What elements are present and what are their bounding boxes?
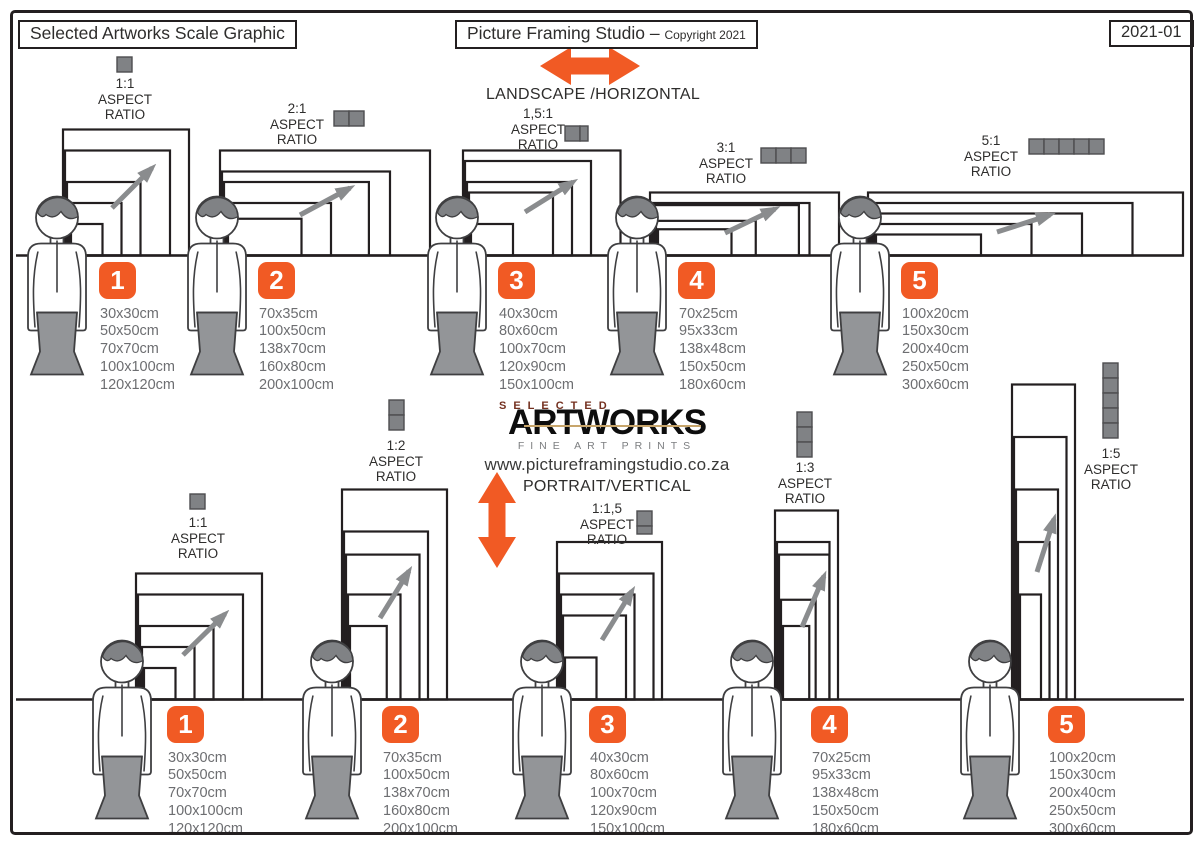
landscape-ratio-label-2: 2:1ASPECTRATIO [270, 101, 324, 148]
size-item: 200x100cm [259, 377, 334, 395]
portrait-ratio-icon-4 [797, 412, 812, 457]
size-item: 70x35cm [383, 750, 458, 768]
size-item: 95x33cm [812, 767, 879, 785]
scale-arrow-icon [1037, 519, 1054, 572]
ratio-word: RATIO [964, 164, 1018, 180]
landscape-arrow-icon [540, 47, 640, 85]
size-item: 150x100cm [499, 377, 574, 395]
aspect-word: ASPECT [369, 454, 423, 470]
landscape-heading: LANDSCAPE /HORIZONTAL [486, 86, 700, 104]
scale-arrow-icon [300, 188, 350, 215]
human-figure [723, 641, 781, 819]
portrait-badge-4: 4 [811, 706, 848, 743]
size-item: 120x90cm [590, 803, 665, 821]
size-item: 100x50cm [259, 323, 334, 341]
landscape-ratio-label-1: 1:1ASPECTRATIO [98, 76, 152, 123]
size-item: 50x50cm [168, 767, 243, 785]
size-item: 40x30cm [499, 306, 574, 324]
size-item: 70x25cm [812, 750, 879, 768]
ratio-value: 1:3 [778, 460, 832, 476]
size-item: 40x30cm [590, 750, 665, 768]
frame-rect [876, 235, 981, 256]
size-item: 95x33cm [679, 323, 746, 341]
size-item: 180x60cm [812, 821, 879, 839]
logo-strike-line [524, 425, 701, 427]
aspect-word: ASPECT [964, 149, 1018, 165]
size-item: 300x60cm [902, 377, 969, 395]
human-figure [188, 197, 246, 375]
size-item: 30x30cm [100, 306, 175, 324]
size-item: 100x100cm [100, 359, 175, 377]
size-item: 120x120cm [100, 377, 175, 395]
landscape-size-list-2: 70x35cm100x50cm138x70cm160x80cm200x100cm [259, 306, 334, 395]
size-item: 100x20cm [902, 306, 969, 324]
landscape-badge-2: 2 [258, 262, 295, 299]
portrait-badge-3: 3 [589, 706, 626, 743]
aspect-word: ASPECT [699, 156, 753, 172]
frame-rect [348, 595, 401, 700]
ratio-word: RATIO [270, 132, 324, 148]
portrait-ratio-icon-1 [190, 494, 205, 509]
ratio-word: RATIO [369, 469, 423, 485]
size-item: 70x70cm [168, 785, 243, 803]
size-item: 250x50cm [1049, 803, 1116, 821]
ratio-value: 1,5:1 [511, 106, 565, 122]
portrait-size-list-5: 100x20cm150x30cm200x40cm250x50cm300x60cm [1049, 750, 1116, 839]
portrait-size-list-3: 40x30cm80x60cm100x70cm120x90cm150x100cm [590, 750, 665, 839]
landscape-ratio-icon-3 [565, 126, 588, 141]
human-figure [608, 197, 666, 375]
frame-rect [557, 542, 662, 700]
size-item: 150x30cm [902, 323, 969, 341]
ratio-value: 1:1 [98, 76, 152, 92]
portrait-heading: PORTRAIT/VERTICAL [477, 478, 737, 496]
portrait-ratio-icon-2 [389, 400, 404, 430]
size-item: 50x50cm [100, 323, 175, 341]
human-figure [28, 197, 86, 375]
size-item: 100x50cm [383, 767, 458, 785]
portrait-ratio-label-1: 1:1ASPECTRATIO [171, 515, 225, 562]
frame-rect [1020, 595, 1041, 700]
portrait-frame-nest-5 [1012, 385, 1075, 700]
ratio-word: RATIO [171, 546, 225, 562]
aspect-word: ASPECT [1084, 462, 1138, 478]
aspect-word: ASPECT [580, 517, 634, 533]
portrait-size-list-4: 70x25cm95x33cm138x48cm150x50cm180x60cm [812, 750, 879, 839]
size-item: 80x60cm [590, 767, 665, 785]
landscape-size-list-1: 30x30cm50x50cm70x70cm100x100cm120x120cm [100, 306, 175, 395]
landscape-ratio-icon-5 [1029, 139, 1104, 154]
aspect-word: ASPECT [98, 92, 152, 108]
portrait-badge-1: 1 [167, 706, 204, 743]
size-item: 250x50cm [902, 359, 969, 377]
ratio-value: 1:1,5 [580, 501, 634, 517]
portrait-frame-nest-3 [557, 542, 662, 700]
landscape-ratio-icon-1 [117, 57, 132, 72]
size-item: 160x80cm [259, 359, 334, 377]
size-item: 80x60cm [499, 323, 574, 341]
size-item: 70x25cm [679, 306, 746, 324]
human-figure [513, 641, 571, 819]
frame-rect [658, 229, 732, 255]
portrait-badge-2: 2 [382, 706, 419, 743]
landscape-badge-3: 3 [498, 262, 535, 299]
size-item: 30x30cm [168, 750, 243, 768]
portrait-ratio-label-5: 1:5ASPECTRATIO [1084, 446, 1138, 493]
scale-arrow-icon [112, 168, 152, 208]
size-item: 100x20cm [1049, 750, 1116, 768]
size-item: 120x90cm [499, 359, 574, 377]
version-label: 2021-01 [1109, 20, 1194, 47]
aspect-word: ASPECT [171, 531, 225, 547]
page-title: Selected Artworks Scale Graphic [18, 20, 297, 49]
landscape-badge-4: 4 [678, 262, 715, 299]
human-figure [303, 641, 361, 819]
aspect-word: ASPECT [511, 122, 565, 138]
frame-rect [1018, 542, 1050, 700]
size-item: 138x48cm [812, 785, 879, 803]
landscape-ratio-label-3: 1,5:1ASPECTRATIO [511, 106, 565, 153]
logo-selected-text: SELECTED [477, 400, 737, 412]
portrait-ratio-icon-5 [1103, 363, 1118, 438]
landscape-badge-1: 1 [99, 262, 136, 299]
frame-rect [561, 595, 635, 700]
size-item: 200x100cm [383, 821, 458, 839]
size-item: 100x100cm [168, 803, 243, 821]
portrait-size-list-2: 70x35cm100x50cm138x70cm160x80cm200x100cm [383, 750, 458, 839]
landscape-ratio-icon-2 [334, 111, 364, 126]
size-item: 100x70cm [499, 341, 574, 359]
website-url: www.pictureframingstudio.co.za [477, 455, 737, 475]
logo-block: SELECTED ARTWORKS FINE ART PRINTS www.pi… [477, 400, 737, 496]
ratio-value: 5:1 [964, 133, 1018, 149]
aspect-word: ASPECT [270, 117, 324, 133]
portrait-size-list-1: 30x30cm50x50cm70x70cm100x100cm120x120cm [168, 750, 243, 839]
human-figure [831, 197, 889, 375]
portrait-ratio-label-2: 1:2ASPECTRATIO [369, 438, 423, 485]
copyright-label: Copyright 2021 [664, 28, 745, 42]
size-item: 150x50cm [679, 359, 746, 377]
portrait-badge-5: 5 [1048, 706, 1085, 743]
ratio-word: RATIO [1084, 477, 1138, 493]
human-figure [428, 197, 486, 375]
size-item: 120x120cm [168, 821, 243, 839]
landscape-ratio-label-5: 5:1ASPECTRATIO [964, 133, 1018, 180]
studio-title: Picture Framing Studio – Copyright 2021 [455, 20, 758, 49]
portrait-frame-nest-4 [775, 511, 838, 700]
ratio-word: RATIO [580, 532, 634, 548]
landscape-badge-5: 5 [901, 262, 938, 299]
size-item: 150x100cm [590, 821, 665, 839]
size-item: 180x60cm [679, 377, 746, 395]
portrait-ratio-label-4: 1:3ASPECTRATIO [778, 460, 832, 507]
scale-arrow-icon [525, 182, 573, 212]
scale-graphic-page: Selected Artworks Scale Graphic Picture … [0, 0, 1200, 842]
size-item: 150x30cm [1049, 767, 1116, 785]
ratio-word: RATIO [699, 171, 753, 187]
studio-name: Picture Framing Studio – [467, 23, 660, 43]
scale-arrow-icon [183, 614, 225, 655]
ratio-value: 1:2 [369, 438, 423, 454]
landscape-size-list-5: 100x20cm150x30cm200x40cm250x50cm300x60cm [902, 306, 969, 395]
ratio-word: RATIO [98, 107, 152, 123]
ratio-value: 3:1 [699, 140, 753, 156]
size-item: 138x70cm [383, 785, 458, 803]
landscape-ratio-label-4: 3:1ASPECTRATIO [699, 140, 753, 187]
frame-rect [781, 600, 816, 700]
human-figure [93, 641, 151, 819]
size-item: 200x40cm [902, 341, 969, 359]
size-item: 160x80cm [383, 803, 458, 821]
ratio-word: RATIO [778, 491, 832, 507]
ratio-word: RATIO [511, 137, 565, 153]
size-item: 200x40cm [1049, 785, 1116, 803]
size-item: 138x70cm [259, 341, 334, 359]
ratio-value: 1:1 [171, 515, 225, 531]
ratio-value: 1:5 [1084, 446, 1138, 462]
size-item: 150x50cm [812, 803, 879, 821]
landscape-ratio-icon-4 [761, 148, 806, 163]
scale-arrow-icon [802, 576, 824, 627]
portrait-ratio-label-3: 1:1,5ASPECTRATIO [580, 501, 634, 548]
size-item: 138x48cm [679, 341, 746, 359]
ratio-value: 2:1 [270, 101, 324, 117]
size-item: 70x70cm [100, 341, 175, 359]
aspect-word: ASPECT [778, 476, 832, 492]
landscape-size-list-3: 40x30cm80x60cm100x70cm120x90cm150x100cm [499, 306, 574, 395]
size-item: 300x60cm [1049, 821, 1116, 839]
size-item: 100x70cm [590, 785, 665, 803]
landscape-size-list-4: 70x25cm95x33cm138x48cm150x50cm180x60cm [679, 306, 746, 395]
size-item: 70x35cm [259, 306, 334, 324]
human-figure [961, 641, 1019, 819]
frame-rect [783, 626, 809, 700]
portrait-ratio-icon-3 [637, 511, 652, 534]
